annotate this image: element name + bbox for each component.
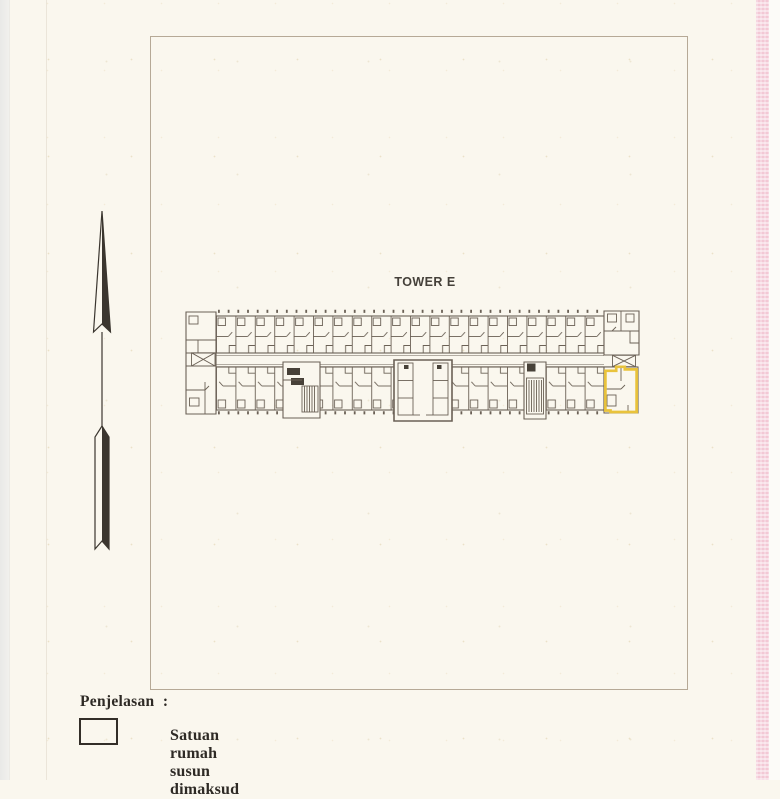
central-core	[394, 360, 452, 421]
scan-edge-right-margin	[769, 0, 780, 780]
highlighted-unit-plan	[604, 367, 638, 413]
paper-crease	[46, 0, 47, 780]
upper-unit-row	[216, 316, 604, 353]
legend-unit-swatch	[79, 718, 118, 745]
floor-plan-drawing	[180, 298, 650, 430]
north-arrow-icon	[84, 205, 120, 565]
plan-title: TOWER E	[355, 275, 495, 289]
legend-heading: Penjelasan :	[80, 693, 168, 711]
left-end-unit-block	[186, 312, 216, 414]
right-end-unit-block	[604, 311, 639, 355]
scan-edge-right-pink	[756, 0, 769, 780]
scan-edge-left	[0, 0, 10, 780]
legend-item-label: Satuan rumah susun dimaksud	[170, 727, 239, 799]
right-stair-block	[524, 362, 546, 419]
right-stair-x-box	[613, 355, 636, 366]
left-service-core	[283, 362, 320, 418]
